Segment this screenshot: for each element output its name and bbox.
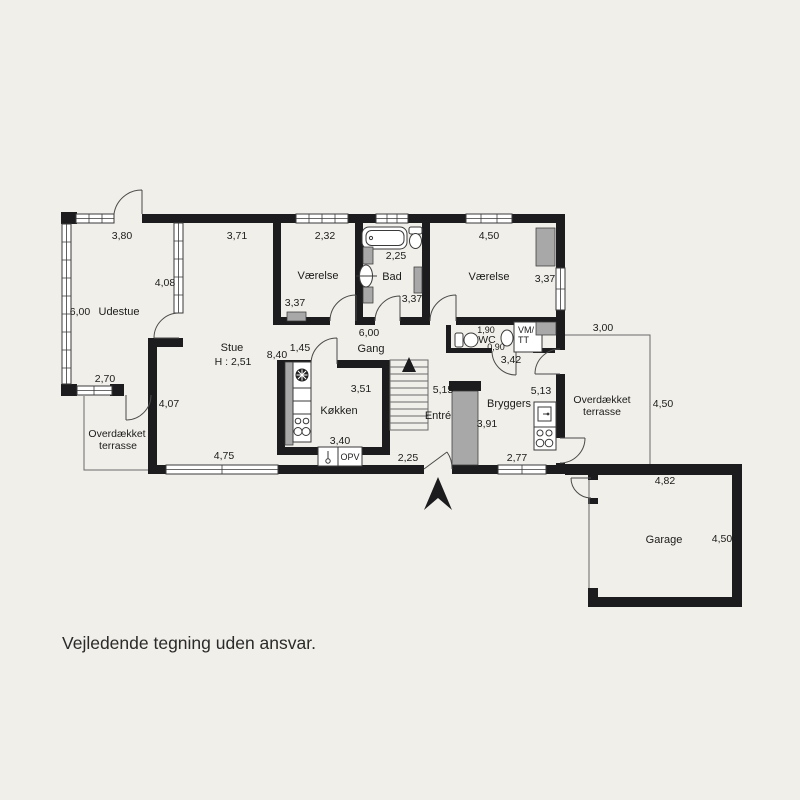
dim-udestue-width: 3,80 <box>112 230 133 242</box>
dishwasher-label: OPV <box>340 452 359 462</box>
wall-wardrobe-cap <box>449 381 481 391</box>
window-stue-south <box>166 465 278 474</box>
dim-udestue-depth: 6,00 <box>70 306 91 318</box>
room-label-gang: Gang <box>358 343 385 355</box>
toilet-icon-bad <box>409 227 422 249</box>
wall-vaerelse1-west <box>273 223 281 325</box>
opening-terrace-south <box>555 438 566 463</box>
cabinet-vm-tt-east <box>536 322 556 335</box>
dim-bad-width: 2,25 <box>386 250 407 262</box>
dim-stue-top: 3,71 <box>227 230 248 242</box>
dim-vaerelse2-width: 4,50 <box>479 230 500 242</box>
window-udestue-north <box>76 214 114 223</box>
window-east-vaerelse2 <box>556 268 565 310</box>
door-udestue-north <box>114 190 142 214</box>
cabinet-bad-east <box>414 267 422 293</box>
kitchen-counter-strip <box>285 362 293 445</box>
wall-kitchen-east <box>382 360 390 455</box>
dim-udestue-window-east: 4,08 <box>155 277 176 289</box>
opening-terrace-bryggers <box>555 350 566 374</box>
wardrobe-vaerelse2 <box>536 228 555 266</box>
dim-udestue-window-south: 2,70 <box>95 373 116 385</box>
room-label-koekken: Køkken <box>320 405 357 417</box>
dim-stue-west: 4,07 <box>159 398 180 410</box>
room-label-bad: Bad <box>382 271 402 283</box>
dim-bryggers-east: 5,13 <box>531 385 552 397</box>
entrance-arrow-icon <box>424 477 452 510</box>
room-label-entre: Entré <box>425 410 451 422</box>
dim-stue-passage: 1,45 <box>290 342 311 354</box>
disclaimer-text: Vejledende tegning uden ansvar. <box>62 633 316 653</box>
door-stue-terrace-left <box>126 395 151 420</box>
wall-bad-south-west <box>363 317 375 325</box>
bathtub-icon <box>362 227 407 249</box>
door-vaerelse2 <box>430 295 456 321</box>
stove-icon-bryggers <box>534 427 556 450</box>
wall-garage-south <box>588 597 742 607</box>
wardrobe-entre <box>452 391 478 465</box>
room-label-stue: Stue <box>221 342 244 354</box>
door-koekken <box>311 338 337 364</box>
terrace-right-label-line2: terrasse <box>583 406 621 418</box>
door-vaerelse1 <box>330 295 356 321</box>
terrace-left-label-line2: terrasse <box>99 440 137 452</box>
dim-garage-width: 4,82 <box>655 475 676 487</box>
wall-wc-south <box>446 348 492 353</box>
dim-entre-length: 5,15 <box>433 384 454 396</box>
wall-bad-south-east <box>400 317 422 325</box>
door-udestue-stue <box>154 313 179 338</box>
dim-vaerelse1-width: 2,32 <box>315 230 336 242</box>
toilet-icon-wc <box>455 333 478 347</box>
extractor-fan-icon <box>296 369 309 382</box>
closet-label-vm: VM/ <box>518 325 535 335</box>
ceiling-height-label: H : 2,51 <box>215 356 252 368</box>
stairs-up-arrow-icon <box>402 357 416 372</box>
dim-bryggers-window: 2,77 <box>507 452 528 464</box>
closet-label-tt: TT <box>518 335 529 345</box>
room-label-garage: Garage <box>646 534 683 546</box>
sink-unit-bryggers <box>534 402 556 427</box>
dim-koekken-width: 3,40 <box>330 435 351 447</box>
dim-front-door: 2,25 <box>398 452 419 464</box>
dim-wc-width: 1,90 <box>477 325 495 335</box>
dim-terrasse-depth: 4,50 <box>653 398 674 410</box>
dim-bryggers-west: 3,91 <box>477 418 498 430</box>
udestue-corner-sw <box>61 384 77 396</box>
dim-bryggers-north: 3,42 <box>501 354 522 366</box>
dim-gang-length: 6,00 <box>359 327 380 339</box>
dim-vaerelse2-depth: 3,37 <box>535 273 556 285</box>
wall-garage-west-stub-bottom <box>588 588 598 607</box>
window-vaerelse2 <box>466 214 512 223</box>
cabinet-vaerelse1 <box>287 312 306 321</box>
wall-east-main <box>556 214 565 474</box>
room-label-vaerelse1: Værelse <box>298 270 339 282</box>
wall-wc-west <box>446 325 451 352</box>
door-garage <box>571 478 591 498</box>
sink-icon-kitchen <box>318 447 338 466</box>
wall-garage-east <box>732 464 742 607</box>
window-udestue-south <box>77 386 112 395</box>
door-bad <box>375 296 400 321</box>
wall-stue-west <box>148 347 157 474</box>
floor-plan-page: Udestue Stue H : 2,51 Værelse Bad Værels… <box>0 0 800 800</box>
udestue-corner-nw <box>61 212 77 224</box>
floor-plan-drawing: Udestue Stue H : 2,51 Værelse Bad Værels… <box>0 0 800 800</box>
terrace-left-label-line1: Overdækket <box>88 428 145 440</box>
window-udestue-east <box>174 223 183 313</box>
stairs <box>390 357 428 430</box>
window-bryggers-south <box>498 465 546 474</box>
dim-stue-window-south: 4,75 <box>214 450 235 462</box>
window-udestue-west <box>62 224 71 384</box>
dim-koekken-depth: 3,51 <box>351 383 372 395</box>
wall-bad-vaerelse2 <box>422 223 430 325</box>
wall-kitchen-west <box>277 360 285 455</box>
window-vaerelse1 <box>296 214 348 223</box>
wall-jog <box>148 338 183 347</box>
dim-wc-depth: 0,90 <box>487 342 505 352</box>
room-label-udestue: Udestue <box>99 306 140 318</box>
dim-stue-width: 8,40 <box>267 349 288 361</box>
dim-vaerelse1-depth: 3,37 <box>285 297 306 309</box>
room-label-bryggers: Bryggers <box>487 398 532 410</box>
window-bad <box>376 214 408 223</box>
stairs-treads <box>390 367 428 423</box>
terrace-right-label-line1: Overdækket <box>573 394 630 406</box>
room-label-vaerelse2: Værelse <box>469 271 510 283</box>
dim-bad-depth: 3,37 <box>402 293 423 305</box>
dim-terrasse-width: 3,00 <box>593 322 614 334</box>
dim-garage-depth: 4,50 <box>712 533 733 545</box>
